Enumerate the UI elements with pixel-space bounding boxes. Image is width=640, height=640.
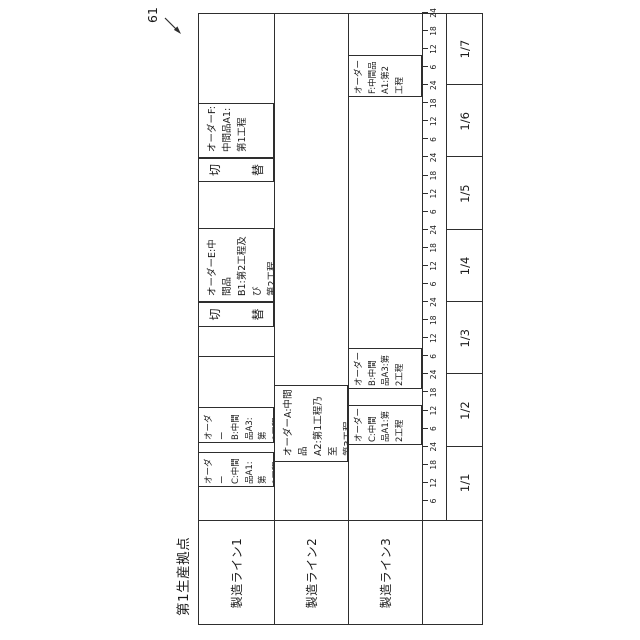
- gantt-bar: オーダー F:中間品 A1:第2 工程: [348, 55, 422, 97]
- day-label: 1/6: [458, 112, 472, 131]
- cell-divider-line: [198, 356, 274, 357]
- changeover-char: 替: [249, 309, 266, 321]
- figure-title: 第1生産拠点: [172, 537, 192, 616]
- hour-tick-label: 18: [429, 240, 438, 256]
- gantt-bar-label: オーダーA:中間品 A2:第1工程乃至 第3工程: [275, 386, 348, 461]
- tick-mark: [422, 301, 428, 302]
- tick-mark: [422, 265, 428, 266]
- day-label: 1/5: [458, 184, 472, 203]
- day-cell: 1/5: [446, 158, 483, 230]
- changeover-cell: 切替: [198, 158, 274, 182]
- hour-tick-label: 6: [429, 421, 438, 437]
- hour-tick-label: 6: [429, 348, 438, 364]
- tick-mark: [422, 30, 428, 31]
- day-label: 1/3: [458, 329, 472, 348]
- tick-mark: [422, 229, 428, 230]
- hour-tick-label: 24: [429, 5, 438, 21]
- tick-mark: [422, 410, 428, 411]
- tick-mark: [422, 138, 428, 139]
- tick-mark: [422, 157, 428, 158]
- gantt-bar: オーダー C:中間 品A1:第 1工程: [198, 452, 274, 487]
- day-label: 1/7: [458, 40, 472, 59]
- tick-mark: [422, 337, 428, 338]
- hour-tick-label: 24: [429, 294, 438, 310]
- gantt-bar: オーダーF: 中間品A1: 第1工程: [198, 103, 274, 158]
- hour-tick-label: 12: [429, 475, 438, 491]
- gantt-bar: オーダーA:中間品 A2:第1工程乃至 第3工程: [274, 385, 348, 462]
- tick-mark: [422, 193, 428, 194]
- hour-tick-label: 18: [429, 312, 438, 328]
- tick-mark: [422, 482, 428, 483]
- tick-mark: [422, 373, 428, 374]
- hour-tick-label: 24: [429, 366, 438, 382]
- gantt-bar: オーダー B:中間 品A3:第 2工程: [348, 348, 422, 389]
- day-label: 1/2: [458, 401, 472, 420]
- hour-tick-label: 12: [429, 113, 438, 129]
- line-label: 製造ライン1: [228, 538, 245, 609]
- day-cell: 1/6: [446, 85, 483, 157]
- line-label-cell: 製造ライン2: [274, 521, 348, 625]
- line-label: 製造ライン3: [377, 538, 394, 609]
- changeover-char: 替: [249, 164, 266, 176]
- hour-tick-label: 24: [429, 222, 438, 238]
- tick-mark: [422, 84, 428, 85]
- gantt-bar: オーダー B:中間 品A3:第 1工程: [198, 407, 274, 443]
- hour-tick-label: 6: [429, 131, 438, 147]
- hour-tick-label: 12: [429, 41, 438, 57]
- hour-tick-label: 6: [429, 204, 438, 220]
- line-label-cell: 製造ライン3: [348, 521, 422, 625]
- tick-mark: [422, 355, 428, 356]
- hour-tick-label: 18: [429, 457, 438, 473]
- changeover-char: 切: [206, 164, 223, 176]
- gantt-bar-label: オーダー B:中間 品A3:第 1工程: [199, 408, 274, 442]
- screenshot-root: { "figure": { "ref_label": "61", "title"…: [0, 0, 640, 640]
- gantt-bar-label: オーダー C:中間 品A1:第 2工程: [349, 406, 407, 444]
- gantt-bar: オーダー C:中間 品A1:第 2工程: [348, 405, 422, 445]
- gantt-bar-label: オーダーF: 中間品A1: 第1工程: [199, 104, 250, 157]
- hour-tick-label: 24: [429, 439, 438, 455]
- tick-mark: [422, 211, 428, 212]
- line-label-cell: 製造ライン1: [198, 521, 274, 625]
- tick-mark: [422, 102, 428, 103]
- hour-tick-label: 6: [429, 59, 438, 75]
- tick-mark: [422, 446, 428, 447]
- tick-mark: [422, 319, 428, 320]
- rotated-figure-canvas: 第1生産拠点 61 1/161218241/261218241/36121824…: [0, 0, 640, 640]
- hour-tick-label: 18: [429, 168, 438, 184]
- gantt-bar-label: オーダー B:中間 品A3:第 2工程: [349, 349, 407, 388]
- tick-mark: [422, 175, 428, 176]
- tick-mark: [422, 12, 428, 13]
- hour-tick-label: 6: [429, 276, 438, 292]
- line-label: 製造ライン2: [303, 538, 320, 609]
- day-cell: 1/3: [446, 302, 483, 374]
- changeover-cell: 切替: [198, 302, 274, 327]
- hour-tick-label: 12: [429, 330, 438, 346]
- tick-mark: [422, 428, 428, 429]
- hour-tick-label: 12: [429, 403, 438, 419]
- gantt-bar-label: オーダー C:中間 品A1:第 1工程: [199, 453, 274, 486]
- hour-tick-label: 18: [429, 23, 438, 39]
- ref-arrow-icon: [158, 8, 188, 42]
- hour-tick-label: 18: [429, 95, 438, 111]
- tick-mark: [422, 391, 428, 392]
- gantt-bar-label: オーダー F:中間品 A1:第2 工程: [349, 56, 407, 96]
- tick-mark: [422, 247, 428, 248]
- hour-tick-label: 24: [429, 150, 438, 166]
- gantt-bar-label: オーダーE:中間品 B1:第2工程及び 第2工程: [199, 229, 274, 301]
- tick-mark: [422, 500, 428, 501]
- day-cell: 1/7: [446, 13, 483, 85]
- hour-tick-label: 12: [429, 186, 438, 202]
- day-label: 1/4: [458, 257, 472, 276]
- gantt-bar: オーダーE:中間品 B1:第2工程及び 第2工程: [198, 228, 274, 302]
- day-cell: 1/1: [446, 447, 483, 519]
- hour-tick-label: 18: [429, 384, 438, 400]
- hour-tick-label: 24: [429, 77, 438, 93]
- day-cell: 1/2: [446, 374, 483, 446]
- hour-tick-label: 12: [429, 258, 438, 274]
- tick-mark: [422, 283, 428, 284]
- tick-mark: [422, 120, 428, 121]
- tick-mark: [422, 48, 428, 49]
- tick-mark: [422, 66, 428, 67]
- day-label: 1/1: [458, 474, 472, 493]
- hour-tick-label: 6: [429, 493, 438, 509]
- day-cell: 1/4: [446, 230, 483, 302]
- changeover-char: 切: [206, 309, 223, 321]
- tick-mark: [422, 464, 428, 465]
